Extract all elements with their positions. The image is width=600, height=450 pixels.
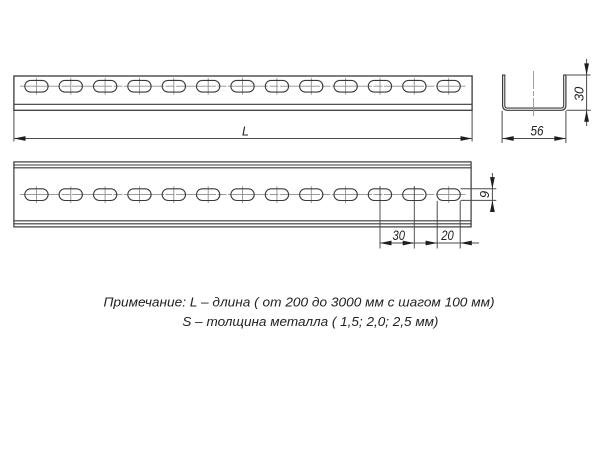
svg-text:30: 30 [393,228,406,243]
svg-text:L: L [242,125,249,139]
svg-text:Примечание: L – длина ( от 200: Примечание: L – длина ( от 200 до 3000 м… [104,295,495,310]
svg-text:S – толщина металла ( 1,5; 2,0: S – толщина металла ( 1,5; 2,0; 2,5 мм) [182,314,438,329]
svg-text:30: 30 [572,87,586,101]
svg-text:56: 56 [531,123,544,139]
svg-text:9: 9 [477,191,492,198]
svg-text:20: 20 [440,228,454,243]
